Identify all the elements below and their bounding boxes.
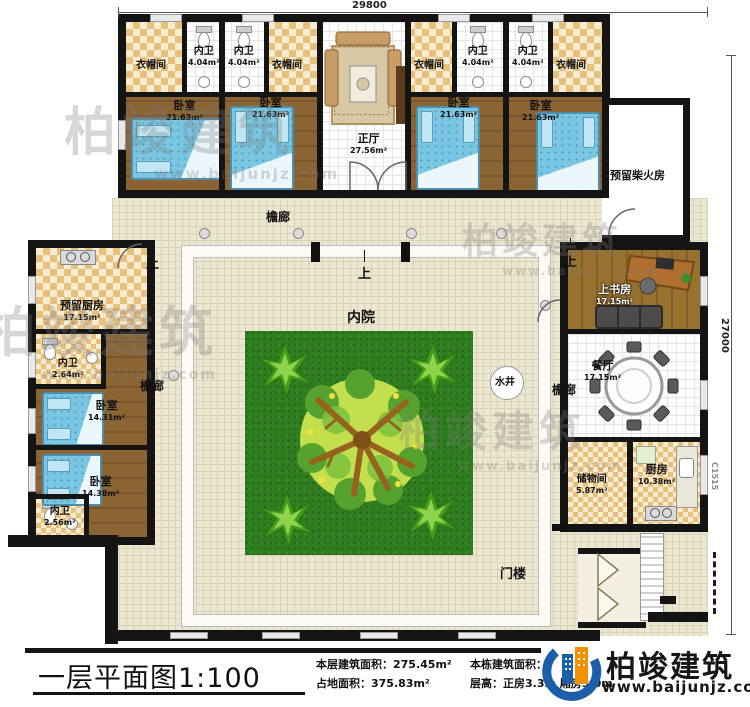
window: [458, 632, 496, 639]
brand-logo-icon: [540, 642, 604, 704]
column: [199, 228, 210, 239]
room-label-closet: 衣帽间: [136, 60, 166, 72]
stair-up-mark: 上: [564, 238, 577, 270]
room-label-west-bath1: 内卫2.64m²: [52, 358, 84, 379]
window: [28, 466, 36, 492]
garden-art: [245, 331, 473, 555]
window: [532, 14, 564, 22]
window: [360, 632, 398, 639]
room-label-bedroom: 卧室21.63m²: [252, 97, 289, 119]
bush-icon: [260, 493, 314, 547]
room-label-firewood: 预留柴火房: [610, 170, 665, 183]
room-label-west-bed1: 卧室14.31m²: [88, 400, 125, 422]
room-label-west-bed2: 卧室14.38m²: [82, 476, 119, 498]
room-label-closet: 衣帽间: [556, 60, 586, 72]
corridor-label-east: 檐廊: [552, 384, 576, 398]
window: [700, 380, 708, 410]
corridor-label-west: 檐廊: [140, 380, 164, 394]
window: [28, 352, 36, 378]
room-label-bath: 内卫4.04m²: [462, 46, 494, 67]
window: [700, 455, 708, 495]
entry-steps: [640, 533, 664, 621]
room-label-gate: 门楼: [500, 568, 526, 583]
room-label-bath: 内卫4.04m²: [512, 46, 544, 67]
west-wing-outline: [28, 240, 155, 545]
titleblock-rule: [25, 648, 541, 653]
floor-plan: 衣帽间 内卫4.04m² 内卫4.04m² 衣帽间 衣帽间 内卫4.04m² 内…: [0, 0, 750, 707]
room-label-bedroom: 卧室21.63m²: [166, 100, 203, 122]
bush-icon: [258, 343, 312, 397]
window: [28, 408, 36, 434]
stair-up-mark: 上: [146, 240, 159, 272]
building-area-text: 本栋建筑面积：: [470, 656, 547, 672]
room-label-west-kitchen: 预留厨房17.15m²: [60, 300, 104, 322]
courtyard-label: 内院: [347, 310, 375, 326]
tree-icon: [297, 369, 427, 510]
bush-icon: [404, 489, 458, 543]
brand-url: www.baijunjz.com: [602, 678, 750, 696]
window: [150, 14, 182, 22]
window: [242, 14, 274, 22]
stair-up-mark: 上: [358, 250, 371, 282]
corridor-label-top: 檐廊: [266, 211, 290, 225]
dimension-right: 27000: [719, 318, 730, 353]
title-underline: [33, 692, 305, 695]
boundary-dashed-line: [713, 552, 716, 614]
well-label: 水井: [495, 377, 515, 389]
column: [168, 370, 179, 381]
room-label-bedroom: 卧室21.63m²: [522, 100, 559, 122]
gate-doors-icon: [596, 552, 622, 622]
dimension-line-top: [118, 12, 708, 13]
room-label-bedroom: 卧室21.63m²: [440, 97, 477, 119]
room-label-closet: 衣帽间: [272, 60, 302, 72]
floor-area-text: 本层建筑面积：275.45m²: [316, 656, 452, 672]
window-code-label: C1515: [710, 462, 719, 490]
window: [170, 632, 208, 639]
bush-icon: [406, 343, 460, 397]
window: [262, 632, 300, 639]
window: [28, 276, 36, 304]
column: [293, 228, 304, 239]
room-label-closet: 衣帽间: [414, 60, 444, 72]
post: [552, 524, 566, 531]
room-label-west-bath2: 内卫2.56m²: [44, 506, 76, 527]
land-area-text: 占地面积：375.83m²: [316, 675, 430, 691]
plan-title: 一层平面图1:100: [38, 656, 261, 695]
post: [401, 242, 410, 262]
dimension-line-right: [731, 55, 732, 635]
dimension-top: 29800: [352, 0, 387, 11]
room-label-hall: 正厅27.56m²: [350, 133, 387, 155]
room-label-bath: 内卫4.04m²: [228, 46, 260, 67]
column: [540, 300, 551, 311]
window: [700, 276, 708, 306]
room-label-bath: 内卫4.04m²: [188, 46, 220, 67]
post: [311, 242, 320, 262]
room-label-storage: 储物间5.87m²: [576, 474, 608, 495]
window: [438, 14, 470, 22]
room-label-east-kitchen: 厨房10.38m²: [638, 464, 675, 486]
column: [496, 228, 507, 239]
brand-logo: 柏竣建筑 www.baijunjz.com: [540, 642, 750, 707]
window: [118, 120, 126, 150]
column: [406, 228, 417, 239]
room-label-study: 上书房17.15m²: [596, 284, 633, 306]
room-label-dining: 餐厅17.15m²: [584, 360, 621, 382]
